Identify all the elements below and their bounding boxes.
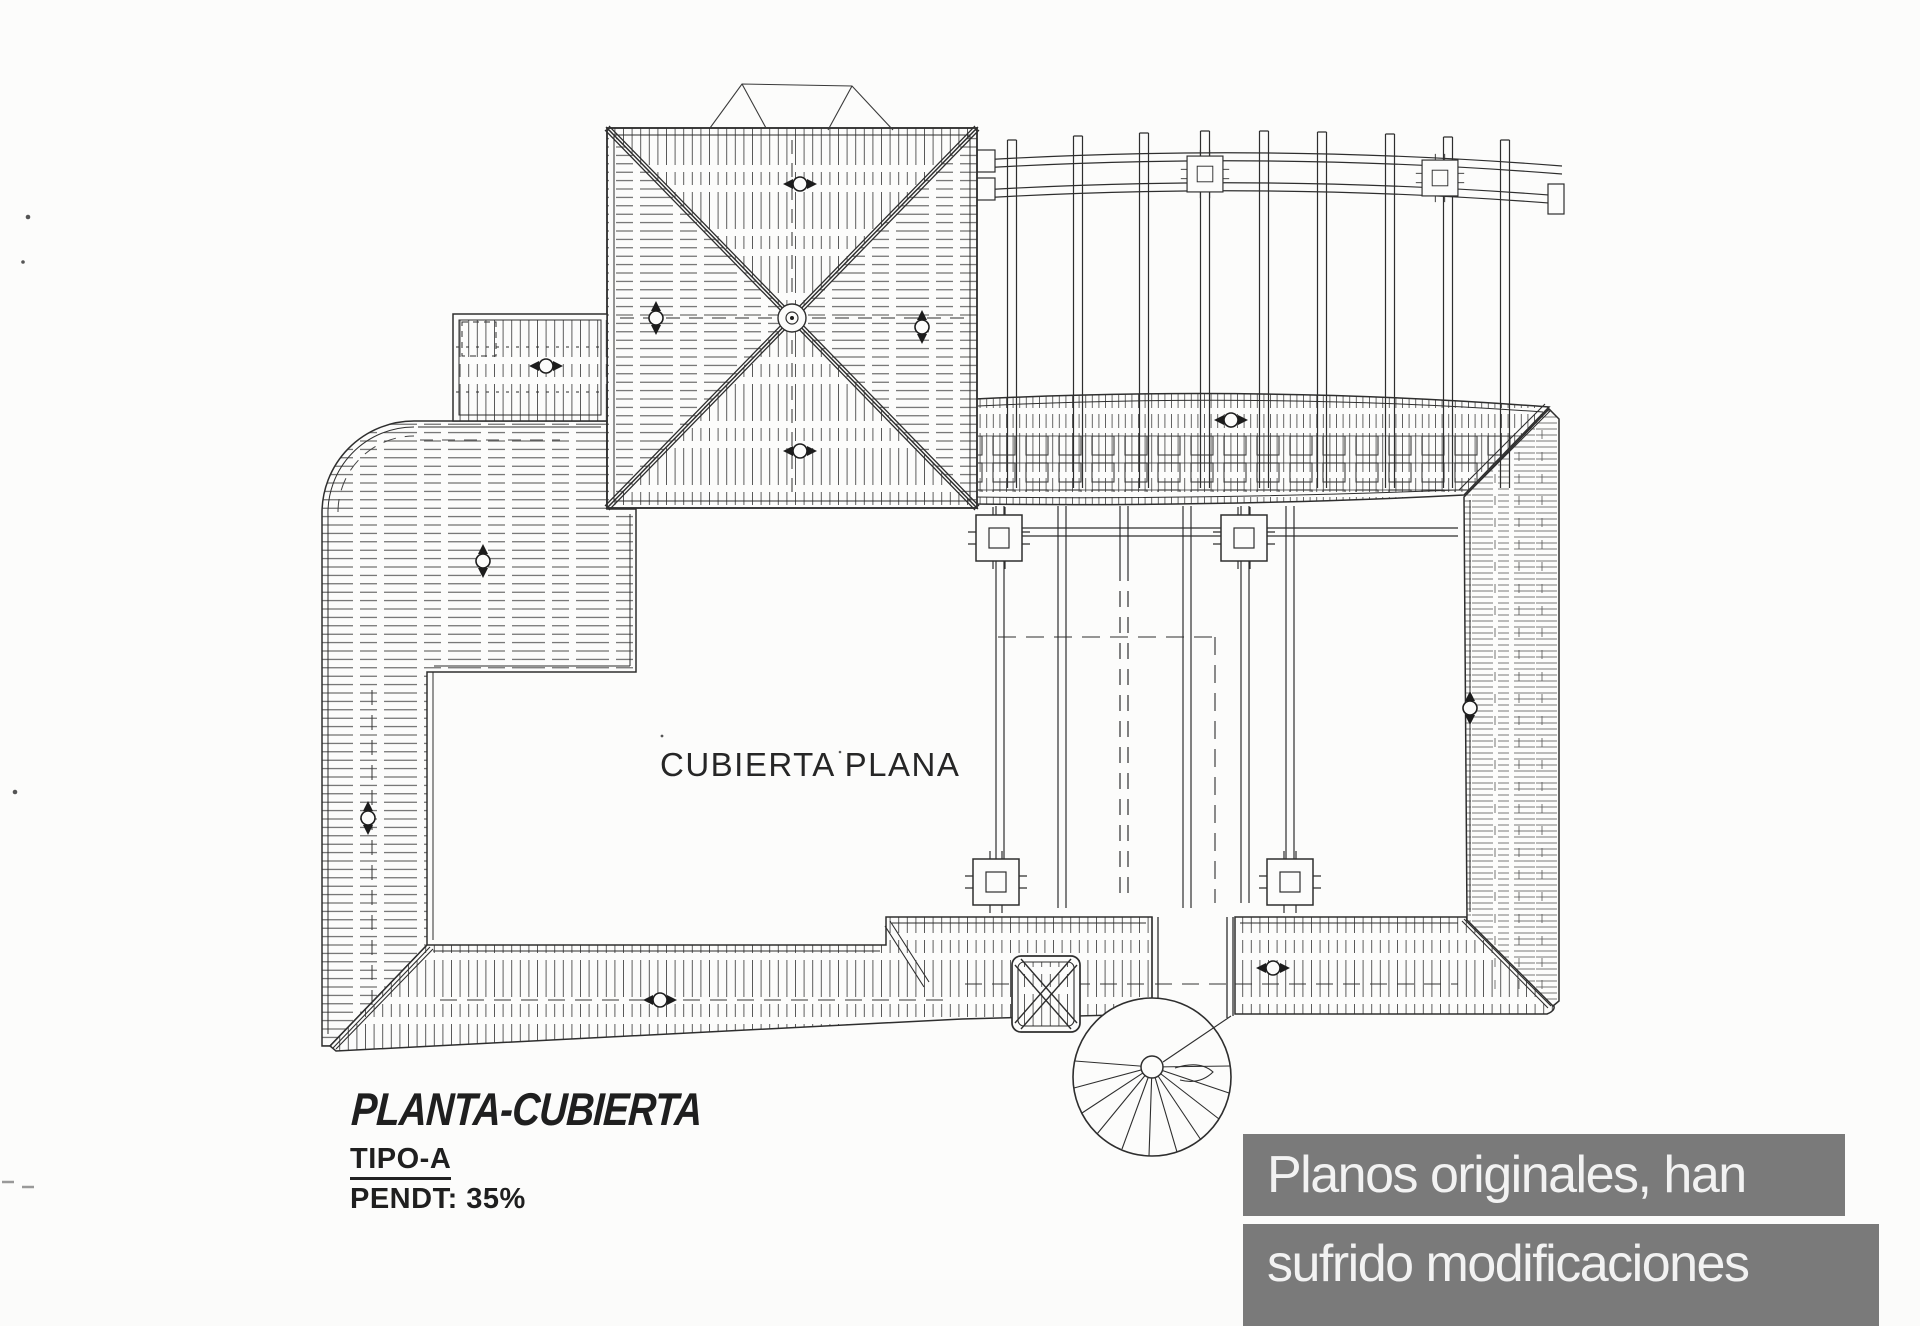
hip-roof-tower <box>605 84 979 510</box>
small-side-roof <box>453 314 607 421</box>
scanned-roof-plan-page: { "drawing": { "center_label": "CUBIERTA… <box>0 0 1920 1280</box>
top-roof-band <box>975 394 1551 505</box>
right-roof-band <box>1464 409 1559 1006</box>
chimney <box>1012 956 1080 1032</box>
plan-title: PLANTA-CUBIERTA <box>350 1082 703 1136</box>
roof-plan-drawing <box>0 0 1920 1280</box>
plan-slope-label: PENDT: 35% <box>350 1183 767 1216</box>
flat-roof-label: CUBIERTA PLANA <box>660 746 960 784</box>
title-block: PLANTA-CUBIERTA TIPO-A PENDT: 35% <box>350 1082 767 1216</box>
caption-line-2: sufrido modificaciones <box>1243 1224 1879 1326</box>
plan-type-label: TIPO-A <box>350 1143 451 1180</box>
caption-line-1: Planos originales, han <box>1243 1134 1845 1216</box>
